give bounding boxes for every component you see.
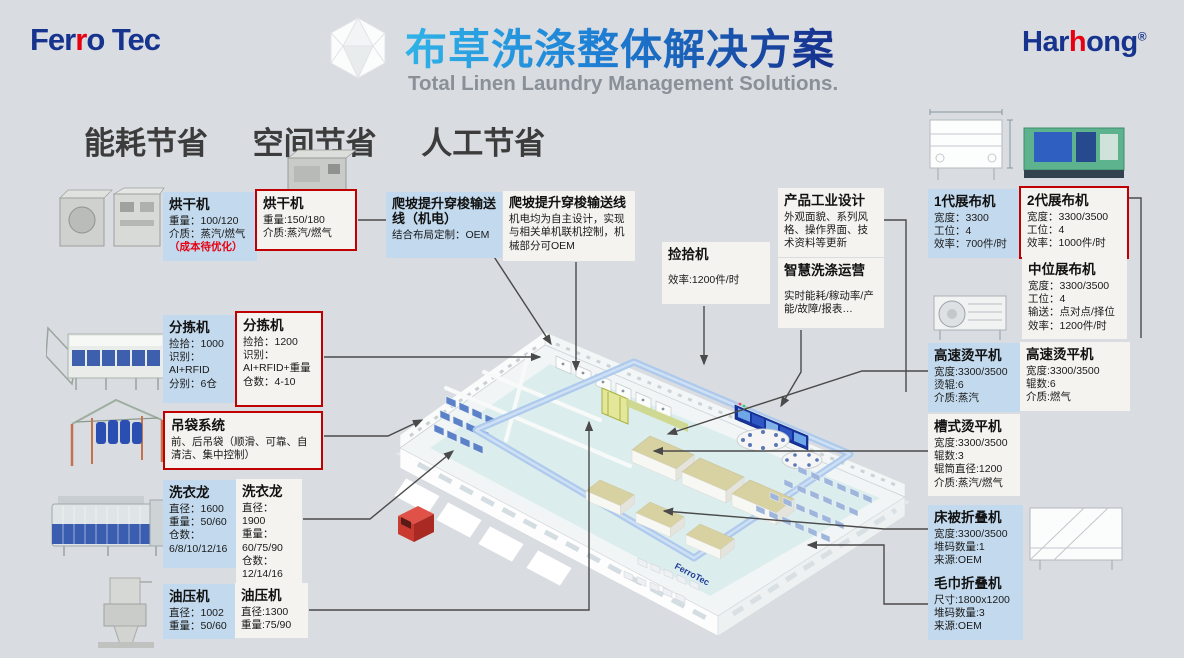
callout-title: 洗衣龙 bbox=[242, 484, 296, 500]
spreader-gen2-photo bbox=[1020, 118, 1130, 184]
callout-hanging-bag-system: 吊袋系统 前、后吊袋（顺滑、可靠、自清洁、集中控制） bbox=[163, 411, 323, 470]
callout-body: 宽度:3300/3500 辊数:3 辊筒直径:1200 介质:蒸汽/燃气 bbox=[934, 437, 1014, 490]
callout-title: 中位展布机 bbox=[1028, 262, 1121, 278]
callout-industrial-design: 产品工业设计 外观面貌、系列风格、操作界面、技术资料等更新 bbox=[778, 188, 884, 257]
callout-body: 宽度：3300/3500 工位：4 输送：点对点/择位 效率：1200件/时 bbox=[1028, 280, 1121, 333]
callout-body: 捡拾：1000 识别： AI+RFID 分别：6仓 bbox=[169, 338, 229, 391]
callout-body: 直径：1600 重量：50/60 仓数： 6/8/10/12/16 bbox=[169, 503, 230, 556]
callout-climb-conveyor-new: 爬坡提升穿梭输送线 机电均为自主设计，实现与相关单机联机控制，机械部分可OEM bbox=[503, 191, 635, 261]
callout-body: 结合布局定制：OEM bbox=[392, 229, 496, 242]
callout-sorter-current: 分拣机 捡拾：1000 识别： AI+RFID 分别：6仓 bbox=[163, 315, 235, 403]
hanging-bag-photo bbox=[66, 394, 168, 474]
tunnel-washer-photo bbox=[50, 488, 170, 562]
callout-ironer-gas: 高速烫平机 宽度:3300/3500 辊数:6 介质:燃气 bbox=[1020, 342, 1130, 411]
sorter-photo bbox=[46, 314, 166, 396]
mid-spreader-photo bbox=[928, 284, 1020, 344]
callout-sorter-new: 分拣机 捡拾：1200 识别： AI+RFID+重量 仓数：4-10 bbox=[235, 311, 323, 407]
callout-body: 直径：1900 重量： 60/75/90 仓数： 12/14/16 bbox=[242, 502, 296, 582]
callout-title: 捡拾机 bbox=[668, 247, 764, 263]
callout-tunnel-washer-new: 洗衣龙 直径：1900 重量： 60/75/90 仓数： 12/14/16 bbox=[236, 479, 302, 587]
callout-body: 效率:1200件/时 bbox=[668, 274, 764, 287]
callout-dryer-new: 烘干机 重量:150/180 介质:蒸汽/燃气 bbox=[255, 189, 357, 251]
callout-title: 床被折叠机 bbox=[934, 510, 1017, 526]
callout-body: 宽度:3300/3500 烫辊:6 介质:蒸汽 bbox=[934, 366, 1014, 406]
callout-title: 毛巾折叠机 bbox=[934, 576, 1017, 592]
callout-title: 智慧洗涤运营 bbox=[784, 263, 878, 279]
callout-tunnel-washer-current: 洗衣龙 直径：1600 重量：50/60 仓数： 6/8/10/12/16 bbox=[163, 480, 236, 568]
callout-ironer-steam: 高速烫平机 宽度:3300/3500 烫辊:6 介质:蒸汽 bbox=[928, 343, 1020, 412]
callout-title: 1代展布机 bbox=[934, 194, 1013, 210]
callout-body: 宽度：3300 工位：4 效率：700件/时 bbox=[934, 212, 1013, 252]
callout-body: 捡拾：1200 识别： AI+RFID+重量 仓数：4-10 bbox=[243, 336, 315, 389]
benefit-labor: 人工节省 bbox=[421, 126, 545, 161]
callout-body: 宽度：3300/3500 工位：4 效率：1000件/时 bbox=[1027, 211, 1121, 251]
logo-accent: r bbox=[75, 22, 86, 57]
callout-mid-spreader: 中位展布机 宽度：3300/3500 工位：4 输送：点对点/择位 效率：120… bbox=[1022, 257, 1127, 339]
callout-hydraulic-press-new: 油压机 直径:1300 重量:75/90 bbox=[235, 583, 308, 638]
callout-chest-ironer: 槽式烫平机 宽度:3300/3500 辊数:3 辊筒直径:1200 介质:蒸汽/… bbox=[928, 414, 1020, 496]
callout-title: 洗衣龙 bbox=[169, 485, 230, 501]
callout-title: 油压机 bbox=[169, 589, 229, 605]
registered-mark: ® bbox=[1138, 29, 1146, 43]
callout-title: 油压机 bbox=[241, 588, 302, 604]
logo-text: Fer bbox=[30, 22, 75, 57]
callout-body: 前、后吊袋（顺滑、可靠、自清洁、集中控制） bbox=[171, 436, 315, 463]
truck-illustration bbox=[398, 506, 434, 542]
callout-body: 直径:1300 重量:75/90 bbox=[241, 606, 302, 633]
callout-title: 吊袋系统 bbox=[171, 418, 315, 434]
callout-title: 高速烫平机 bbox=[1026, 347, 1124, 363]
callout-body: 实时能耗/稼动率/产能/故障/报表… bbox=[784, 290, 878, 317]
logo-text: o Tec bbox=[86, 22, 160, 57]
callout-smart-laundry-ops: 智慧洗涤运营 实时能耗/稼动率/产能/故障/报表… bbox=[778, 258, 884, 328]
callout-title: 烘干机 bbox=[169, 197, 251, 213]
callout-title: 产品工业设计 bbox=[784, 193, 878, 209]
hydraulic-press-photo bbox=[86, 574, 166, 652]
callout-towel-folder: 毛巾折叠机 尺寸:1800x1200 堆码数量:3 来源:OEM bbox=[928, 571, 1023, 640]
slide-canvas: Ferro Tec 布草洗涤整体解决方案 Total Linen Laundry… bbox=[0, 0, 1184, 658]
callout-title: 高速烫平机 bbox=[934, 348, 1014, 364]
spreader-gen1-photo bbox=[924, 106, 1018, 188]
polyhedron-icon bbox=[327, 16, 389, 80]
dryer-photo bbox=[56, 186, 166, 252]
callout-note: （成本待优化） bbox=[169, 241, 251, 255]
callout-spreader-gen1: 1代展布机 宽度：3300 工位：4 效率：700件/时 bbox=[928, 189, 1019, 258]
callout-body: 重量：100/120 介质：蒸汽/燃气 bbox=[169, 215, 251, 242]
logo-accent: h bbox=[1069, 26, 1086, 58]
logo-text: ong bbox=[1086, 26, 1138, 58]
callout-title: 爬坡提升穿梭输送线 bbox=[509, 196, 629, 211]
callout-title: 槽式烫平机 bbox=[934, 419, 1014, 435]
ferrotec-logo: Ferro Tec bbox=[30, 22, 160, 58]
callout-title: 分拣机 bbox=[243, 318, 315, 334]
callout-body: 重量:150/180 介质:蒸汽/燃气 bbox=[263, 214, 349, 241]
factory-isometric-illustration: FerroTec bbox=[388, 318, 940, 636]
harhong-logo: Harhong® bbox=[1022, 26, 1146, 59]
callout-title: 爬坡提升穿梭输送线（机电） bbox=[392, 197, 496, 227]
page-title: 布草洗涤整体解决方案 bbox=[405, 16, 835, 77]
callout-body: 机电均为自主设计，实现与相关单机联机控制，机械部分可OEM bbox=[509, 213, 629, 253]
callout-dryer-current: 烘干机 重量：100/120 介质：蒸汽/燃气 （成本待优化） bbox=[163, 192, 257, 261]
callout-body: 尺寸:1800x1200 堆码数量:3 来源:OEM bbox=[934, 594, 1017, 634]
callout-body: 宽度:3300/3500 辊数:6 介质:燃气 bbox=[1026, 365, 1124, 405]
callout-climb-conveyor-current: 爬坡提升穿梭输送线（机电） 结合布局定制：OEM bbox=[386, 192, 502, 258]
callout-bedsheet-folder: 床被折叠机 宽度:3300/3500 堆码数量:1 来源:OEM bbox=[928, 505, 1023, 574]
callout-title: 分拣机 bbox=[169, 320, 229, 336]
callout-body: 直径：1002 重量：50/60 bbox=[169, 607, 229, 634]
page-subtitle: Total Linen Laundry Management Solutions… bbox=[408, 72, 838, 96]
folder-photo bbox=[1024, 498, 1132, 574]
callout-title: 烘干机 bbox=[263, 196, 349, 212]
callout-picker: 捡拾机 效率:1200件/时 bbox=[662, 242, 770, 304]
logo-text: Har bbox=[1022, 26, 1069, 58]
callout-hydraulic-press-current: 油压机 直径：1002 重量：50/60 bbox=[163, 584, 235, 639]
callout-body: 宽度:3300/3500 堆码数量:1 来源:OEM bbox=[934, 528, 1017, 568]
benefit-energy: 能耗节省 bbox=[84, 126, 208, 161]
callout-title: 2代展布机 bbox=[1027, 193, 1121, 209]
callout-spreader-gen2: 2代展布机 宽度：3300/3500 工位：4 效率：1000件/时 bbox=[1019, 186, 1129, 259]
callout-body: 外观面貌、系列风格、操作界面、技术资料等更新 bbox=[784, 211, 878, 251]
connector-line bbox=[1128, 198, 1141, 338]
